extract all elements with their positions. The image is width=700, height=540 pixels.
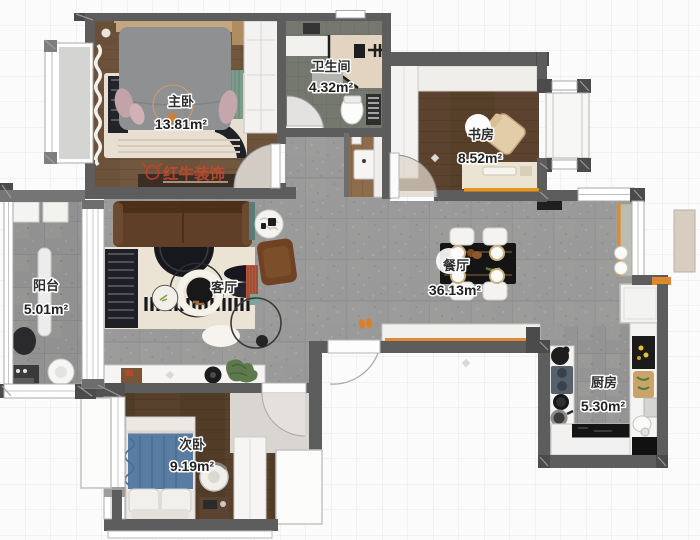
svg-text:36.13m²: 36.13m²	[429, 282, 481, 298]
svg-text:5.01m²: 5.01m²	[24, 301, 69, 317]
svg-text:次卧: 次卧	[179, 437, 205, 452]
svg-text:厨房: 厨房	[591, 375, 617, 390]
svg-text:5.30m²: 5.30m²	[581, 398, 626, 414]
svg-text:4.32m²: 4.32m²	[309, 79, 354, 95]
svg-text:餐厅: 餐厅	[442, 258, 469, 273]
svg-text:红牛装饰: 红牛装饰	[163, 164, 225, 183]
svg-text:13.81m²: 13.81m²	[155, 116, 207, 132]
svg-text:主卧: 主卧	[168, 94, 194, 109]
svg-text:卫生间: 卫生间	[311, 59, 350, 74]
svg-text:书房: 书房	[468, 127, 494, 142]
svg-text:客厅: 客厅	[211, 280, 237, 295]
svg-text:阳台: 阳台	[33, 278, 59, 293]
svg-text:8.52m²: 8.52m²	[458, 150, 503, 166]
svg-text:9.19m²: 9.19m²	[170, 458, 215, 474]
